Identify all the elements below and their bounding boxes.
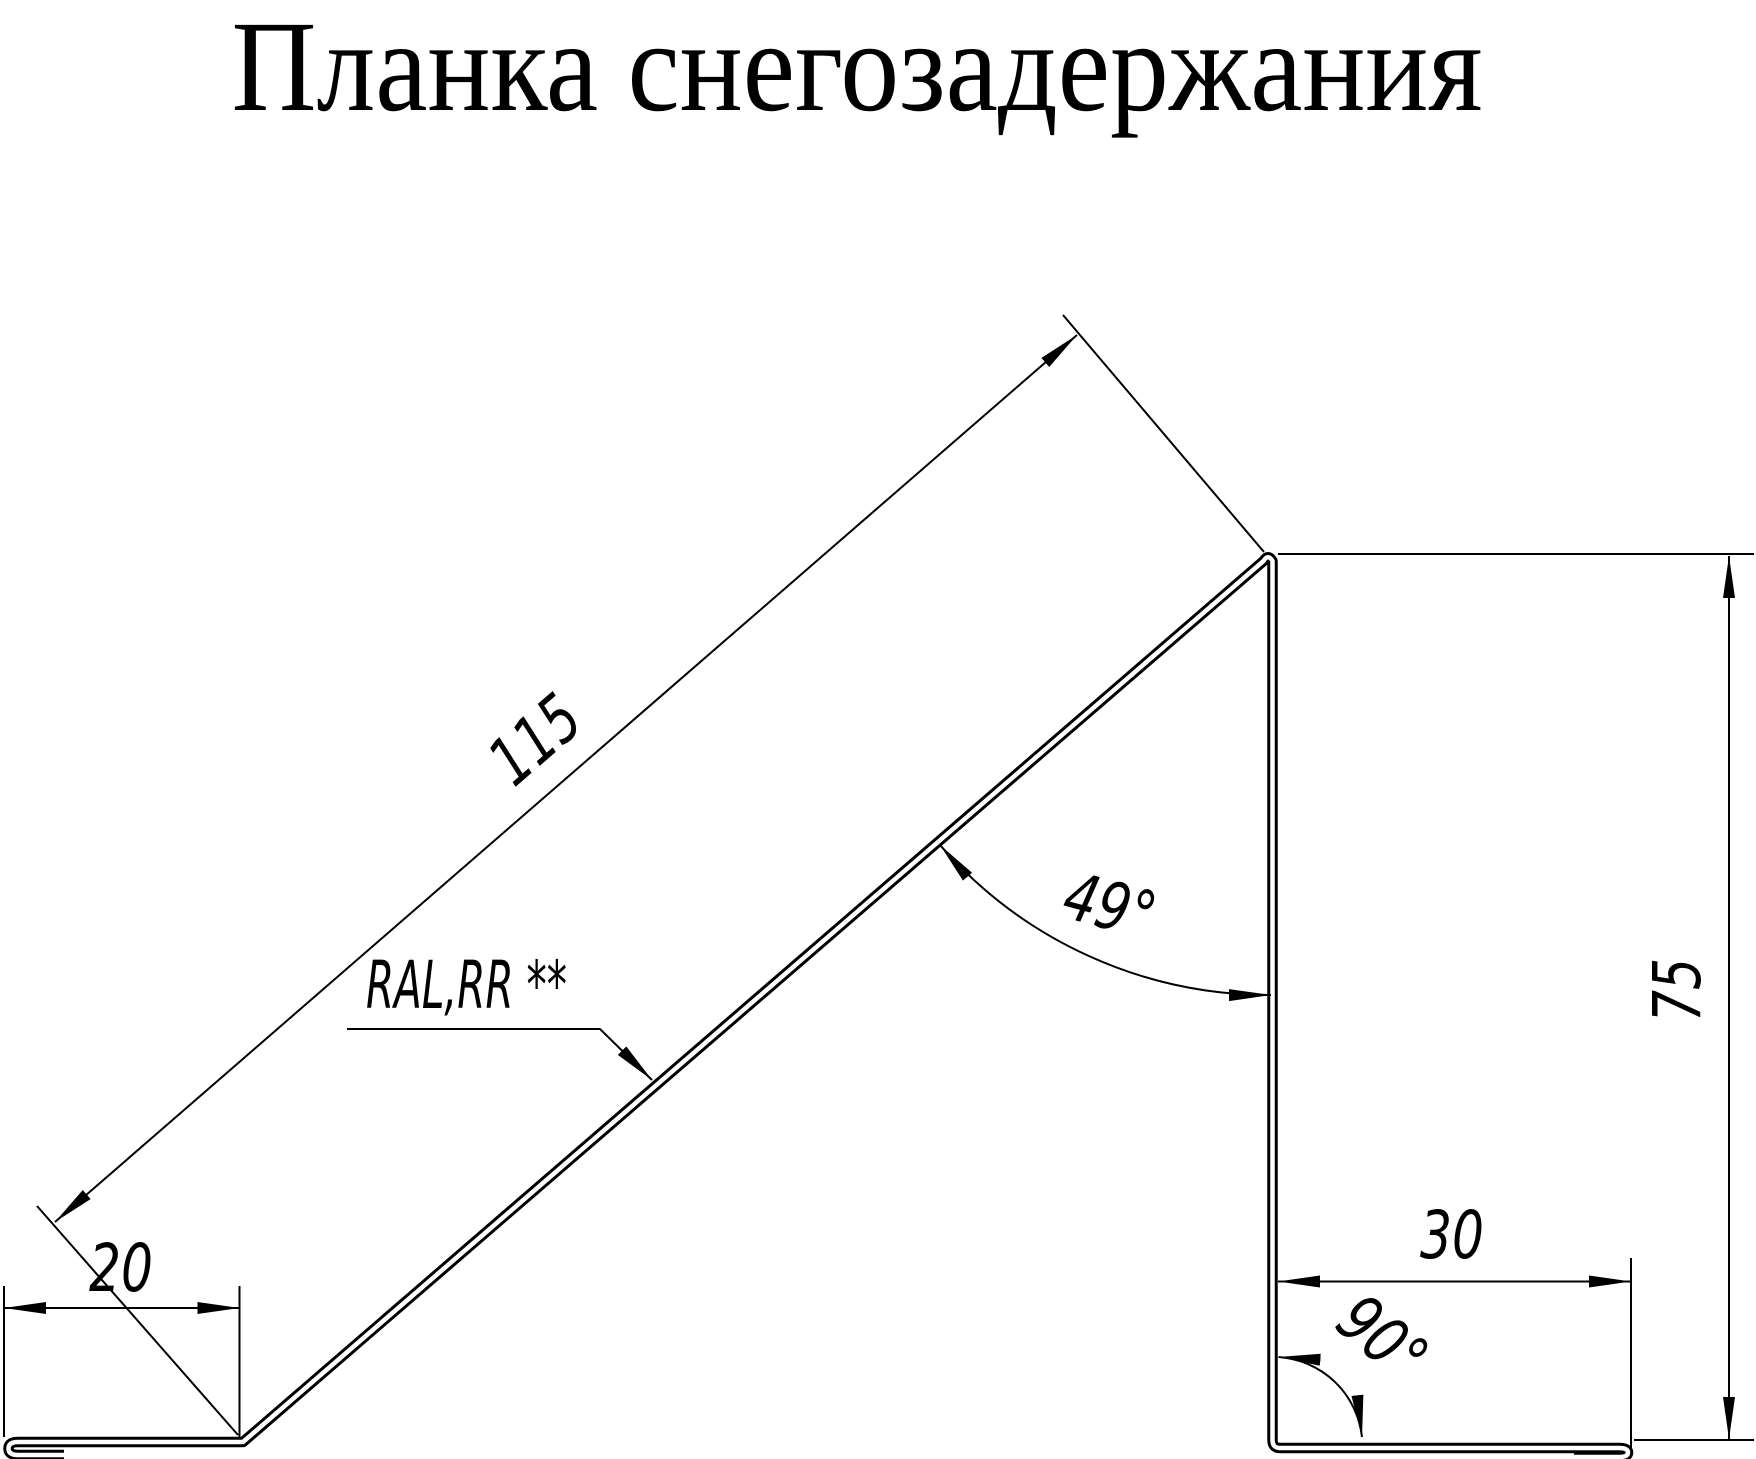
dim-label-30: 30 — [1420, 1197, 1484, 1274]
dimension-30: 30 — [1278, 1197, 1631, 1448]
dim-label-20: 20 — [89, 1230, 153, 1307]
technical-drawing: Планка снегозадержания 115 20 75 — [0, 0, 1756, 1459]
angle-arc-90 — [1279, 1357, 1363, 1437]
dimension-20: 20 — [4, 1230, 240, 1437]
dim-line-115 — [55, 335, 1077, 1222]
angle-label-90: 90° — [1322, 1280, 1442, 1398]
dim-label-75: 75 — [1639, 958, 1716, 1022]
angle-90: 90° — [1279, 1280, 1443, 1437]
drawing-page: Планка снегозадержания 115 20 75 — [0, 0, 1756, 1459]
dim-label-115: 115 — [474, 679, 597, 800]
coating-label: RAL,RR ** — [366, 947, 567, 1024]
coating-note: RAL,RR ** — [347, 947, 652, 1080]
angle-label-49: 49° — [1055, 857, 1164, 955]
ext-line-115-top — [1063, 315, 1264, 552]
drawing-title: Планка снегозадержания — [232, 0, 1483, 139]
leader-line — [347, 1029, 652, 1080]
angle-49: 49° — [940, 845, 1271, 995]
